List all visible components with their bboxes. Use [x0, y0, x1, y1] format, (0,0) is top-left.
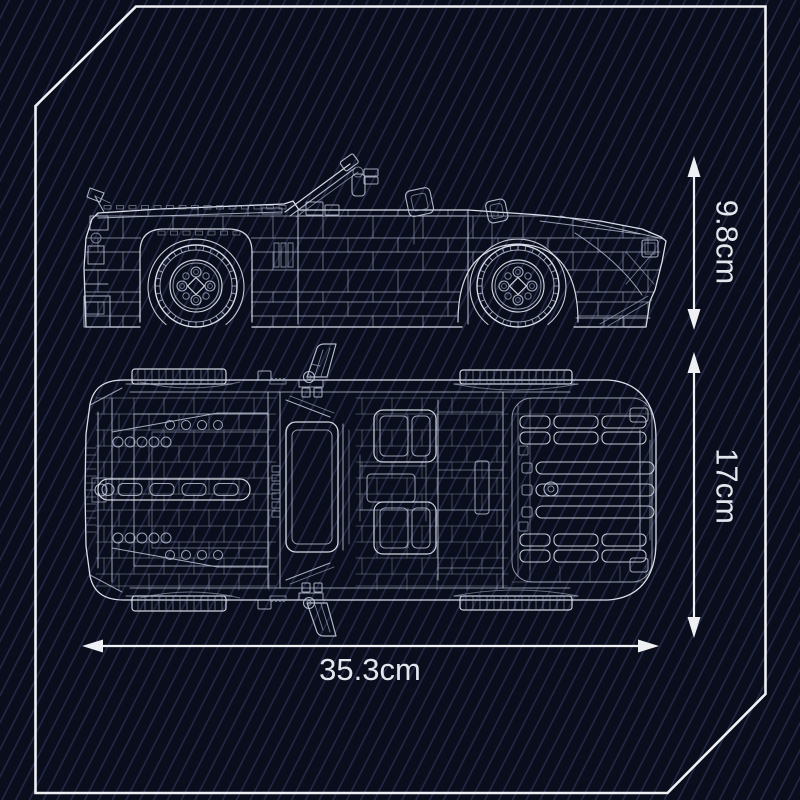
svg-text:35.3cm: 35.3cm: [319, 652, 421, 687]
svg-text:9.8cm: 9.8cm: [710, 200, 745, 284]
svg-text:17cm: 17cm: [710, 448, 745, 524]
